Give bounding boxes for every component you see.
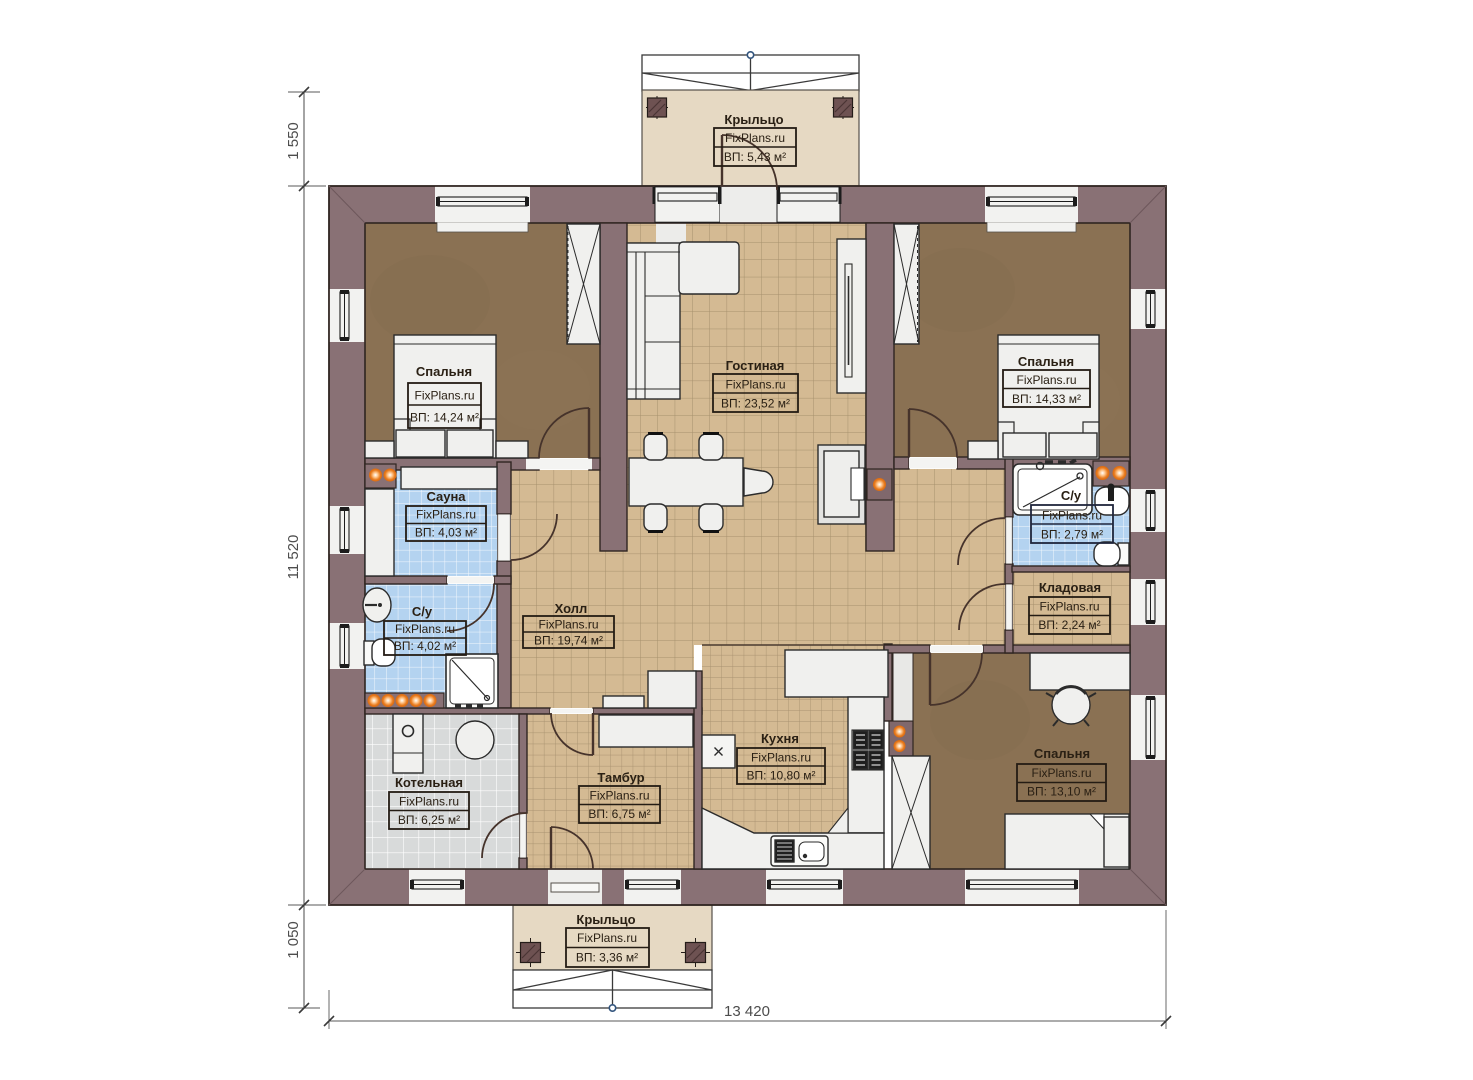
svg-text:ВП: 6,25 м²: ВП: 6,25 м² [398,813,460,827]
svg-text:FixPlans.ru: FixPlans.ru [725,131,785,145]
svg-text:FixPlans.ru: FixPlans.ru [589,789,649,803]
svg-text:С/у: С/у [1061,488,1082,503]
svg-text:ВП: 3,36 м²: ВП: 3,36 м² [576,951,638,965]
svg-text:1 050: 1 050 [285,921,302,959]
svg-text:ВП: 2,79 м²: ВП: 2,79 м² [1041,528,1103,542]
svg-text:С/у: С/у [412,604,433,619]
svg-text:ВП: 5,43 м²: ВП: 5,43 м² [724,150,786,164]
svg-text:ВП: 23,52 м²: ВП: 23,52 м² [721,397,790,411]
svg-text:Спальня: Спальня [1034,746,1090,761]
svg-text:FixPlans.ru: FixPlans.ru [751,751,811,765]
svg-text:FixPlans.ru: FixPlans.ru [414,389,474,403]
svg-text:ВП: 4,02 м²: ВП: 4,02 м² [394,639,456,653]
svg-text:ВП: 13,10 м²: ВП: 13,10 м² [1027,785,1096,799]
svg-text:Котельная: Котельная [395,775,463,790]
svg-text:ВП: 4,03 м²: ВП: 4,03 м² [415,526,477,540]
svg-text:Гостиная: Гостиная [726,358,785,373]
svg-text:ВП: 2,24 м²: ВП: 2,24 м² [1038,618,1100,632]
svg-text:ВП: 6,75 м²: ВП: 6,75 м² [588,807,650,821]
svg-text:FixPlans.ru: FixPlans.ru [577,931,637,945]
svg-text:FixPlans.ru: FixPlans.ru [1039,600,1099,614]
svg-text:ВП: 10,80 м²: ВП: 10,80 м² [747,769,816,783]
svg-text:Спальня: Спальня [1018,354,1074,369]
svg-text:FixPlans.ru: FixPlans.ru [1031,766,1091,780]
svg-text:FixPlans.ru: FixPlans.ru [538,618,598,632]
svg-text:ВП: 14,33 м²: ВП: 14,33 м² [1012,392,1081,406]
svg-text:FixPlans.ru: FixPlans.ru [1016,373,1076,387]
svg-text:Кухня: Кухня [761,731,799,746]
svg-text:Кладовая: Кладовая [1039,580,1101,595]
svg-text:Крыльцо: Крыльцо [724,112,783,127]
svg-text:FixPlans.ru: FixPlans.ru [395,622,455,636]
svg-text:FixPlans.ru: FixPlans.ru [725,378,785,392]
svg-text:ВП: 19,74 м²: ВП: 19,74 м² [534,634,603,648]
svg-text:11 520: 11 520 [285,535,302,580]
svg-text:13 420: 13 420 [724,1003,770,1020]
svg-text:Холл: Холл [555,601,588,616]
svg-text:Сауна: Сауна [426,489,466,504]
svg-text:FixPlans.ru: FixPlans.ru [1042,509,1102,523]
svg-text:Спальня: Спальня [416,364,472,379]
svg-text:ВП: 14,24 м²: ВП: 14,24 м² [410,411,479,425]
svg-text:1 550: 1 550 [285,122,302,160]
svg-text:FixPlans.ru: FixPlans.ru [399,795,459,809]
svg-text:Тамбур: Тамбур [597,770,644,785]
svg-text:Крыльцо: Крыльцо [576,912,635,927]
svg-text:FixPlans.ru: FixPlans.ru [416,508,476,522]
